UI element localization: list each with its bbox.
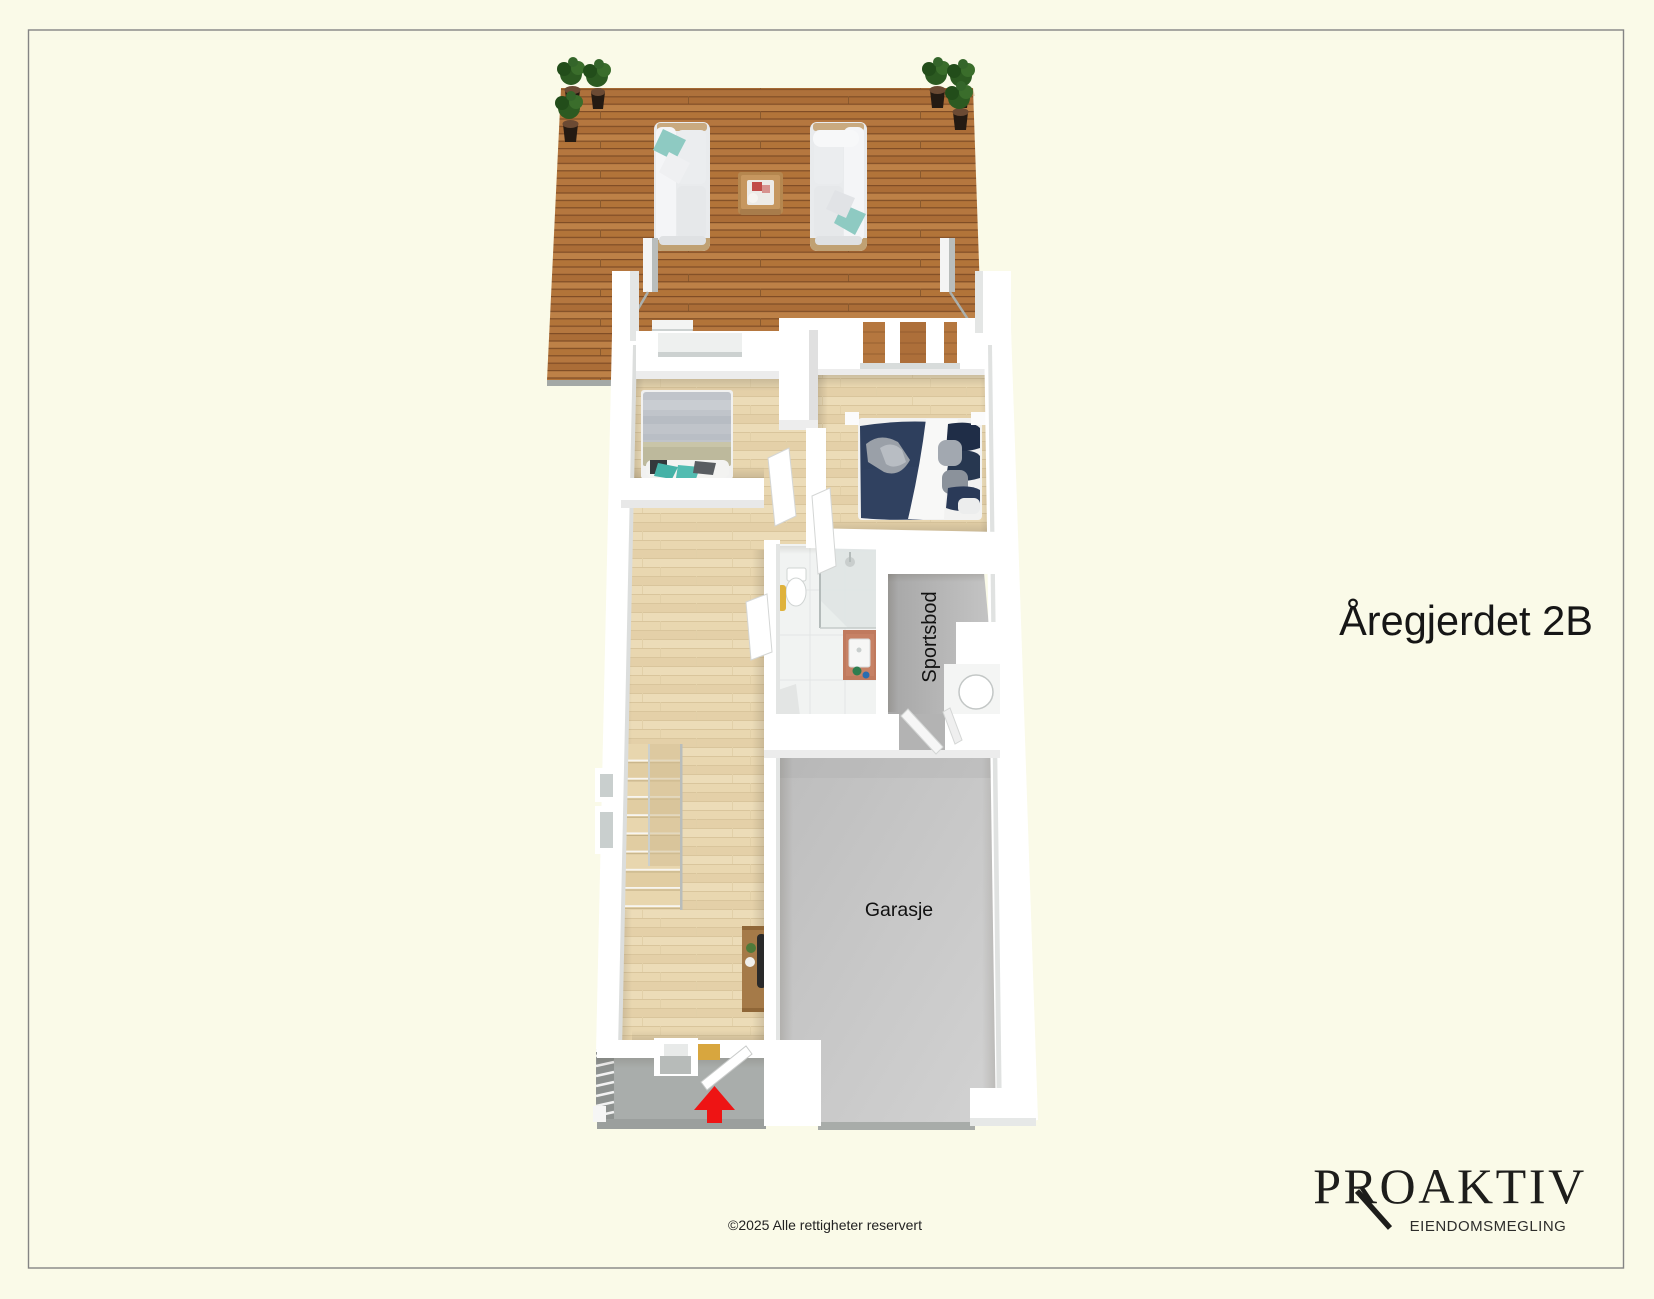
svg-text:Sportsbod: Sportsbod [919, 591, 941, 682]
svg-text:PROAKTIV: PROAKTIV [1313, 1158, 1587, 1214]
svg-text:Åregjerdet 2B: Åregjerdet 2B [1339, 597, 1593, 644]
svg-text:EIENDOMSMEGLING: EIENDOMSMEGLING [1410, 1218, 1567, 1235]
svg-text:©2025 Alle rettigheter reserve: ©2025 Alle rettigheter reservert [728, 1217, 922, 1233]
svg-text:Garasje: Garasje [865, 899, 933, 921]
